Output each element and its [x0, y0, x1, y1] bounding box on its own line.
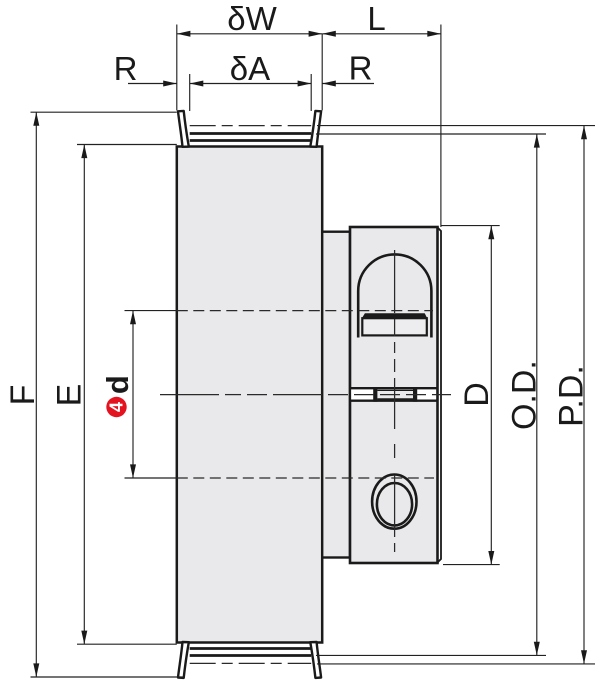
- svg-text:R: R: [114, 50, 138, 87]
- svg-text:δW: δW: [227, 0, 277, 37]
- svg-text:D: D: [458, 382, 496, 407]
- svg-text:R: R: [349, 50, 373, 87]
- svg-text:F: F: [4, 385, 42, 406]
- svg-text:E: E: [50, 384, 88, 407]
- svg-text:δA: δA: [230, 50, 270, 87]
- svg-text:O.D.: O.D.: [506, 360, 544, 430]
- svg-text:P.D.: P.D.: [552, 365, 590, 427]
- svg-text:L: L: [367, 0, 385, 37]
- svg-text:4: 4: [106, 402, 126, 412]
- svg-text:d: d: [100, 375, 135, 394]
